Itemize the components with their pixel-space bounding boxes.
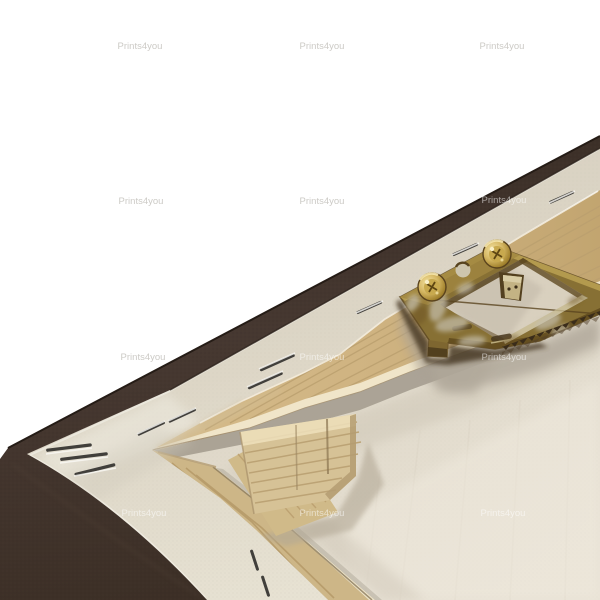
svg-text:Prints4you: Prints4you [119, 196, 164, 207]
svg-text:Prints4you: Prints4you [300, 196, 345, 207]
svg-text:Prints4you: Prints4you [482, 352, 527, 363]
svg-text:Prints4you: Prints4you [121, 352, 166, 363]
svg-text:Prints4you: Prints4you [300, 352, 345, 363]
svg-text:Prints4you: Prints4you [482, 195, 527, 206]
svg-text:Prints4you: Prints4you [300, 41, 345, 52]
svg-text:Prints4you: Prints4you [122, 508, 167, 519]
svg-text:Prints4you: Prints4you [481, 508, 526, 519]
svg-text:Prints4you: Prints4you [480, 41, 525, 52]
svg-text:Prints4you: Prints4you [118, 41, 163, 52]
svg-text:Prints4you: Prints4you [300, 508, 345, 519]
